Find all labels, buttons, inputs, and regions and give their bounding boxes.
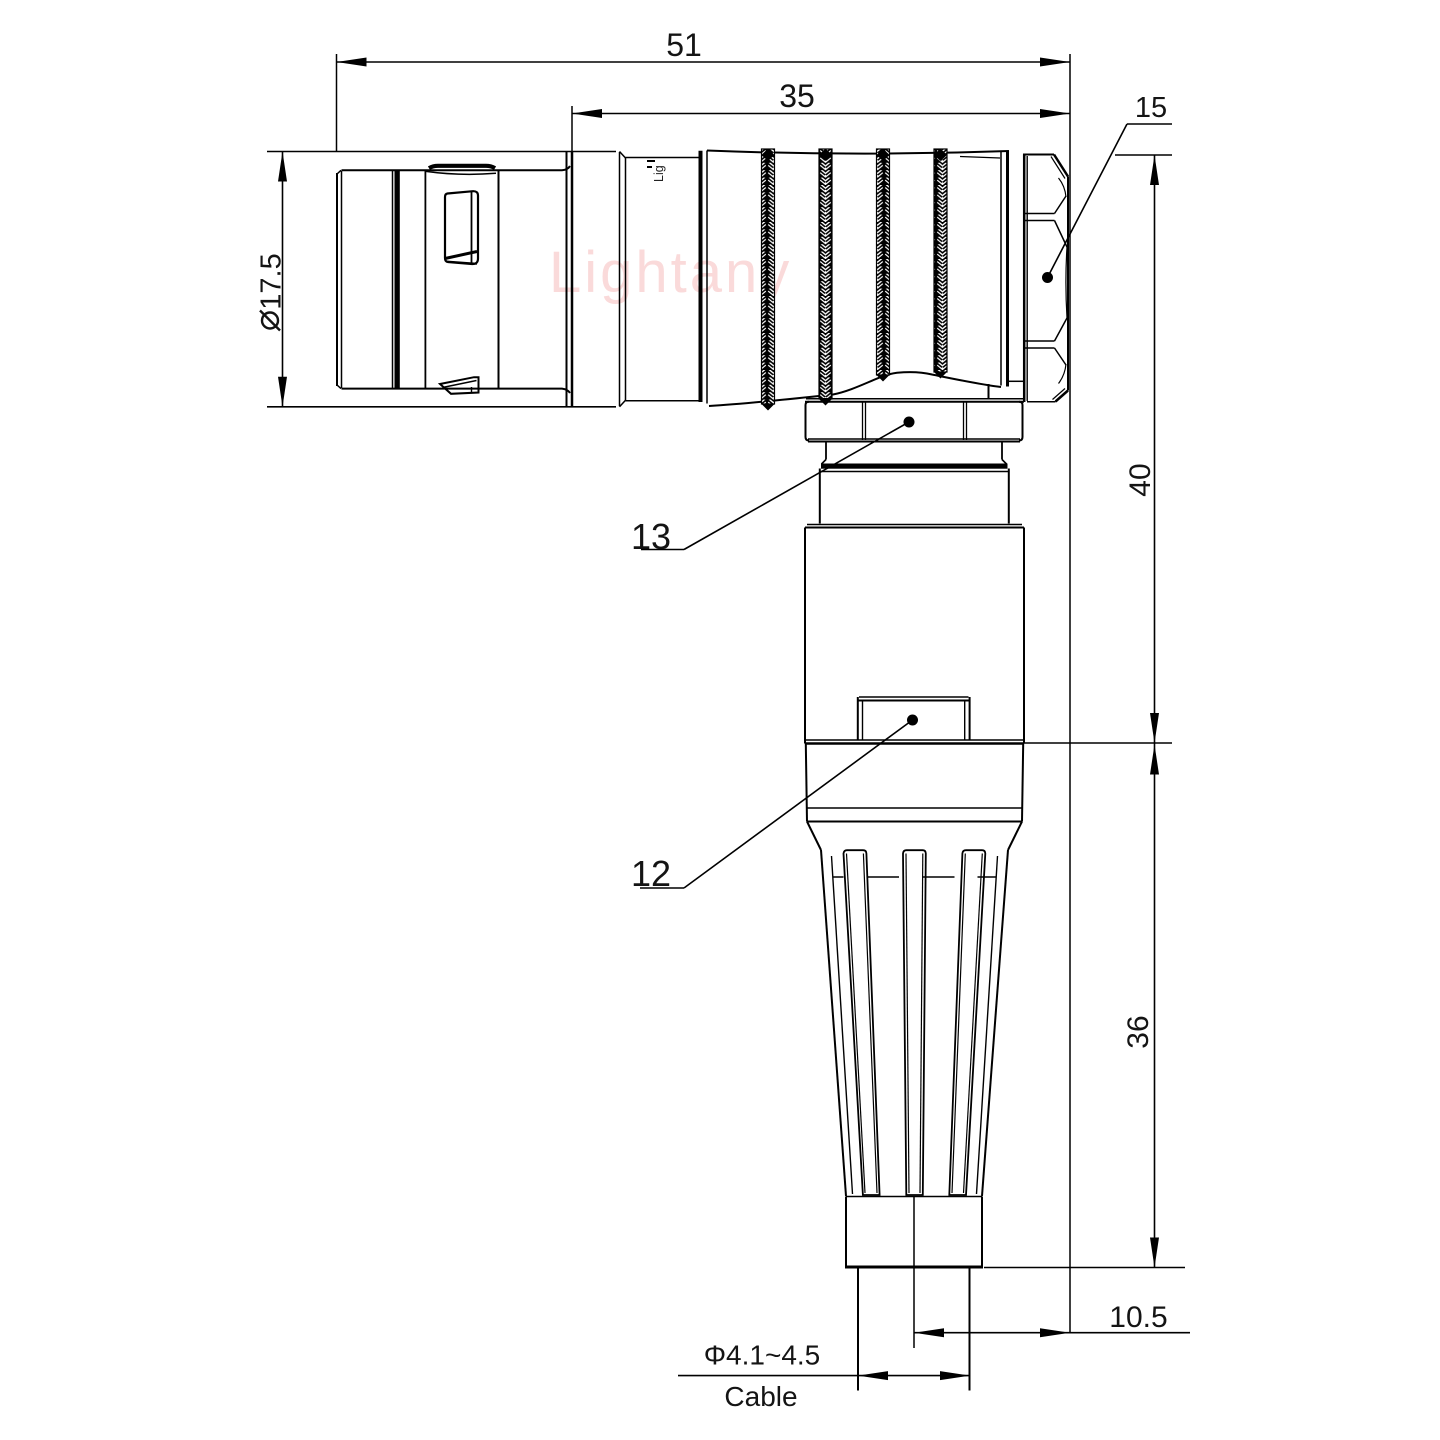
svg-text:Φ4.1~4.5: Φ4.1~4.5 [704, 1340, 821, 1371]
svg-text:Lightany: Lightany [549, 240, 792, 305]
svg-text:35: 35 [779, 78, 815, 114]
svg-text:51: 51 [666, 27, 702, 63]
svg-text:13: 13 [631, 516, 671, 557]
svg-text:10.5: 10.5 [1109, 1301, 1167, 1334]
svg-text:15: 15 [1135, 92, 1167, 124]
svg-text:40: 40 [1124, 463, 1157, 496]
svg-text:Cable: Cable [724, 1381, 797, 1412]
svg-text:17.5: 17.5 [256, 253, 288, 309]
svg-text:36: 36 [1122, 1015, 1155, 1048]
svg-text:Lig: Lig [652, 165, 666, 182]
